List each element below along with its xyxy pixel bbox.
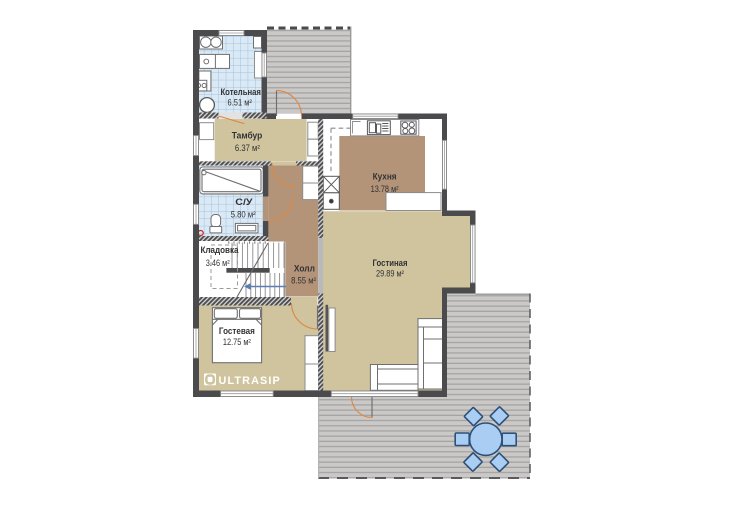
svg-text:ULTRASIP: ULTRASIP: [219, 375, 281, 387]
svg-text:12.75 м²: 12.75 м²: [223, 337, 251, 347]
svg-text:29.89 м²: 29.89 м²: [376, 269, 404, 279]
svg-text:Кладовка: Кладовка: [201, 245, 240, 256]
svg-text:Гостевая: Гостевая: [219, 326, 255, 337]
svg-text:С/У: С/У: [235, 197, 253, 208]
svg-text:Гостиная: Гостиная: [373, 258, 408, 269]
svg-text:Холл: Холл: [294, 264, 315, 275]
svg-text:8.55 м²: 8.55 м²: [291, 276, 316, 286]
svg-text:6.37 м²: 6.37 м²: [235, 143, 260, 153]
svg-text:3.46 м²: 3.46 м²: [206, 258, 230, 268]
svg-text:5.80 м²: 5.80 м²: [231, 209, 256, 219]
svg-text:6.51 м²: 6.51 м²: [228, 98, 252, 108]
svg-text:13.78 м²: 13.78 м²: [371, 184, 399, 194]
svg-text:Тамбур: Тамбур: [232, 131, 263, 142]
svg-text:Котельная: Котельная: [220, 87, 261, 98]
svg-text:Кухня: Кухня: [373, 171, 397, 182]
